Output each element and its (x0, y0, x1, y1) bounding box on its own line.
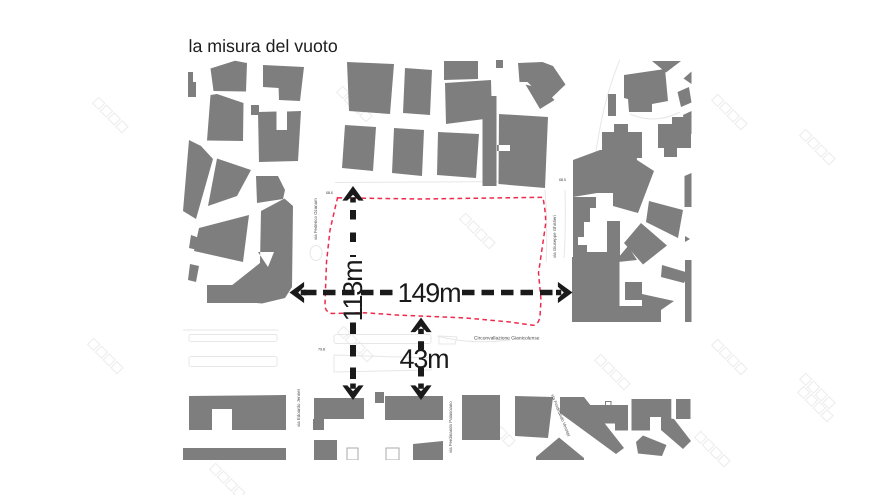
svg-text:via Edoardo Jenner: via Edoardo Jenner (296, 388, 301, 427)
svg-text:la misura del vuoto: la misura del vuoto (189, 36, 338, 56)
svg-text:Circonvallazione Gianicolense: Circonvallazione Gianicolense (474, 336, 540, 342)
svg-text:79.8: 79.8 (318, 348, 325, 352)
svg-text:149m: 149m (398, 278, 461, 308)
svg-text:43m: 43m (400, 344, 449, 374)
svg-text:via Ferdinando Palasciano: via Ferdinando Palasciano (448, 401, 453, 453)
svg-text:68.5: 68.5 (559, 178, 566, 182)
svg-text:via Giuseppe Ghislieri: via Giuseppe Ghislieri (552, 215, 557, 258)
svg-text:68.6: 68.6 (326, 191, 333, 195)
svg-text:113m: 113m (338, 261, 368, 322)
svg-text:via Federico Ozanam: via Federico Ozanam (313, 198, 318, 240)
